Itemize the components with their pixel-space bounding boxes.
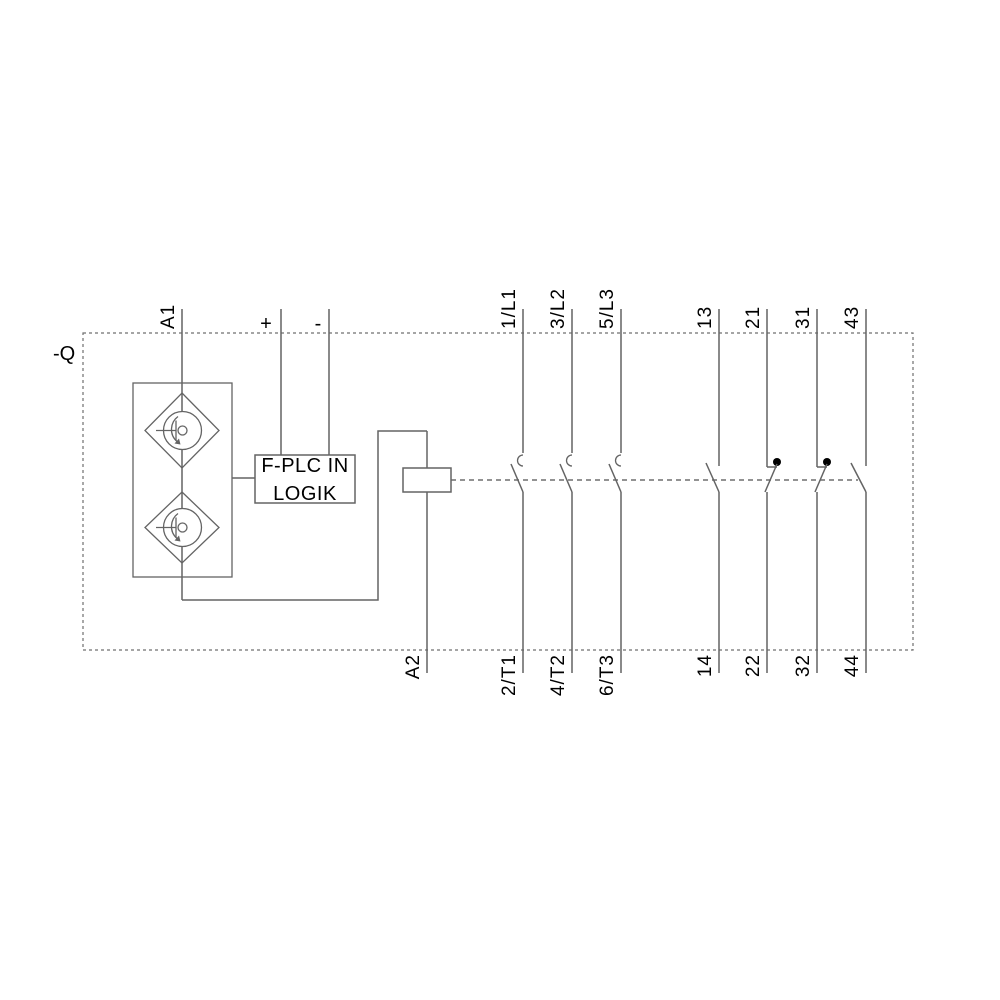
pole-3l2-4t2: 3/L2 4/T2 bbox=[548, 288, 572, 696]
fplc-logic-box: F-PLC IN LOGIK bbox=[255, 455, 355, 505]
logic-box-label-line2: LOGIK bbox=[273, 483, 337, 505]
terminal-label-plus: + bbox=[260, 313, 272, 335]
terminal-label-bottom: 44 bbox=[842, 654, 863, 677]
aux-contact-43-44: 43 44 bbox=[842, 306, 866, 677]
aux-contact-31-32: 31 32 bbox=[793, 306, 831, 677]
contactor-schematic: -Q bbox=[0, 0, 1000, 1000]
contact-blade bbox=[609, 464, 621, 492]
main-contact-hook-icon bbox=[567, 455, 573, 466]
schematic-page: -Q bbox=[0, 0, 1000, 1000]
terminal-label-top: 1/L1 bbox=[499, 288, 520, 329]
terminal-label-top: 43 bbox=[842, 306, 863, 329]
terminal-label-bottom: 14 bbox=[695, 654, 716, 677]
terminal-label-bottom: 2/T1 bbox=[499, 654, 520, 696]
terminal-label-bottom: 32 bbox=[793, 654, 814, 677]
coil-symbol bbox=[403, 468, 451, 492]
terminal-label-bottom: 22 bbox=[743, 654, 764, 677]
hub-circle-icon bbox=[178, 523, 187, 532]
contact-blade bbox=[706, 463, 719, 492]
contact-blade bbox=[851, 463, 866, 492]
main-contact-hook-icon bbox=[616, 455, 622, 466]
aux-contact-21-22: 21 22 bbox=[743, 306, 781, 677]
device-tag-label: -Q bbox=[53, 343, 75, 365]
contact-blade bbox=[765, 464, 777, 492]
terminal-label-top: 5/L3 bbox=[597, 288, 618, 329]
logic-box-label-line1: F-PLC IN bbox=[261, 455, 348, 477]
main-contact-hook-icon bbox=[518, 455, 524, 466]
terminal-label-a1: A1 bbox=[158, 304, 179, 329]
pole-5l3-6t3: 5/L3 6/T3 bbox=[597, 288, 621, 696]
terminal-label-top: 13 bbox=[695, 306, 716, 329]
device-boundary bbox=[83, 333, 913, 650]
terminal-label-top: 3/L2 bbox=[548, 288, 569, 329]
control-circuit: F-PLC IN LOGIK A1 + - A2 bbox=[133, 304, 451, 680]
terminal-label-top: 31 bbox=[793, 306, 814, 329]
terminal-label-a2: A2 bbox=[403, 654, 424, 679]
aux-contact-13-14: 13 14 bbox=[695, 306, 719, 677]
contact-blade bbox=[560, 464, 572, 492]
contact-blade bbox=[511, 464, 523, 492]
terminal-label-bottom: 4/T2 bbox=[548, 654, 569, 696]
terminal-label-top: 21 bbox=[743, 306, 764, 329]
hub-circle-icon bbox=[178, 426, 187, 435]
terminal-label-minus: - bbox=[315, 313, 322, 335]
terminal-label-bottom: 6/T3 bbox=[597, 654, 618, 696]
contact-blade bbox=[815, 464, 827, 492]
pole-1l1-2t1: 1/L1 2/T1 bbox=[499, 288, 523, 696]
